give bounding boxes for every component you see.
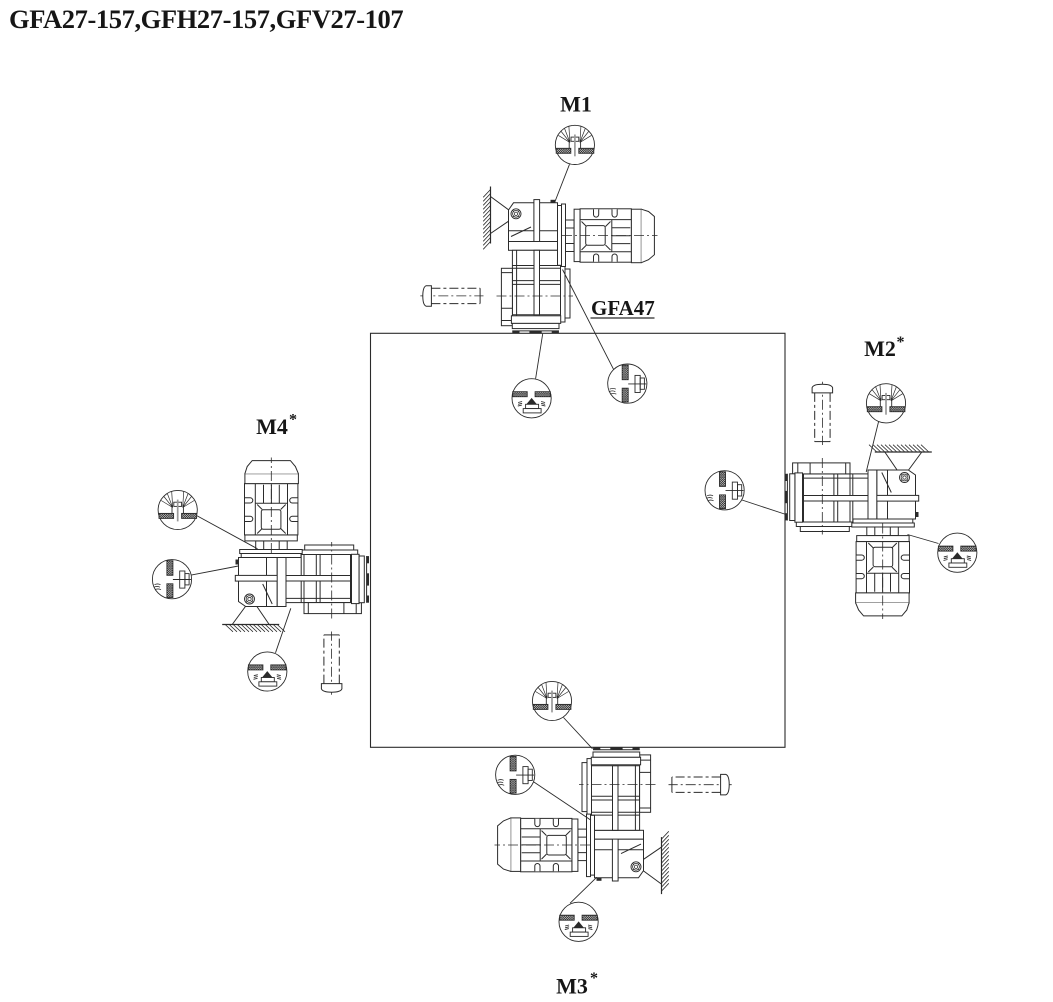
svg-text:M3: M3 — [556, 974, 588, 999]
svg-text:*: * — [590, 970, 598, 987]
svg-text:*: * — [897, 334, 905, 351]
svg-text:*: * — [289, 412, 297, 429]
svg-text:GFA27-157,GFH27-157,GFV27-107: GFA27-157,GFH27-157,GFV27-107 — [9, 4, 403, 34]
svg-text:M2: M2 — [864, 336, 896, 361]
svg-text:GFA47: GFA47 — [591, 296, 655, 320]
svg-text:M4: M4 — [256, 414, 288, 439]
svg-text:M1: M1 — [560, 92, 592, 117]
